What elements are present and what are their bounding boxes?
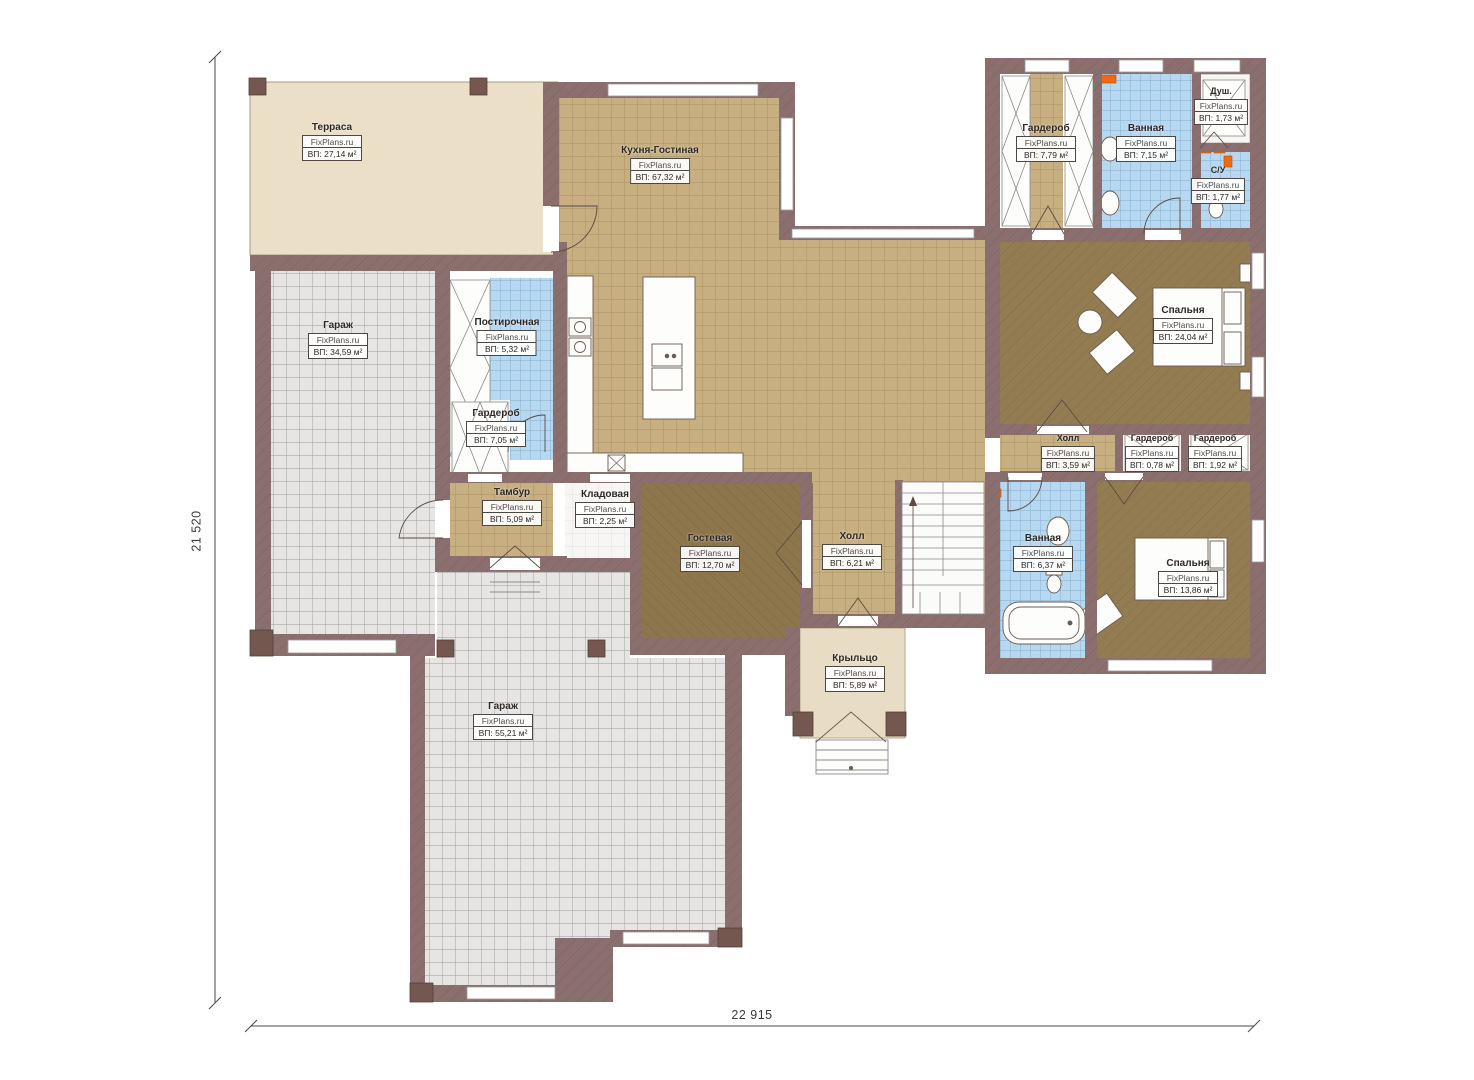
toilet: [1209, 200, 1223, 218]
floor-garage-bottom: [425, 658, 725, 938]
window: [792, 229, 974, 238]
round-table: [1078, 310, 1102, 334]
porch-post: [793, 712, 813, 736]
floor-hall-2: [1000, 435, 1117, 471]
floor-kitchen-top: [559, 98, 779, 230]
window: [1025, 60, 1069, 72]
window: [1252, 253, 1264, 289]
terrace-post: [470, 78, 487, 95]
dimension-width-label: 22 915: [731, 1008, 772, 1022]
floor-plan-drawing: [0, 0, 1474, 1080]
porch-post: [886, 712, 906, 736]
sink: [1101, 191, 1119, 215]
garage-door: [288, 640, 396, 653]
window: [1119, 60, 1163, 72]
bay-window: [1108, 660, 1212, 671]
floor-tambour: [450, 483, 553, 556]
window: [781, 118, 793, 210]
dimension-height-label: 21 520: [190, 510, 204, 551]
staircase: [902, 482, 984, 614]
floor-guest-room: [642, 483, 800, 638]
floor-terrace: [250, 82, 558, 255]
window: [608, 84, 758, 96]
sink: [1101, 137, 1119, 161]
kitchen-island: [643, 277, 695, 419]
window: [1252, 520, 1264, 562]
toilet: [1047, 575, 1061, 593]
floor-plan-canvas: Терраса FixPlans.ru ВП: 27,14 м² Кухня-Г…: [0, 0, 1474, 1080]
garage-door: [623, 932, 709, 944]
terrace-post: [249, 78, 266, 95]
window: [1194, 60, 1240, 72]
floor-garage-top: [271, 271, 435, 634]
sink: [1047, 517, 1069, 545]
floor-wardrobe-2: [1030, 74, 1063, 228]
floor-garage-bottom-ext: [425, 938, 570, 987]
floor-kitchen-main: [559, 228, 985, 474]
floor-wc: [1197, 152, 1250, 228]
window: [1252, 357, 1264, 397]
garage-door: [467, 987, 555, 999]
